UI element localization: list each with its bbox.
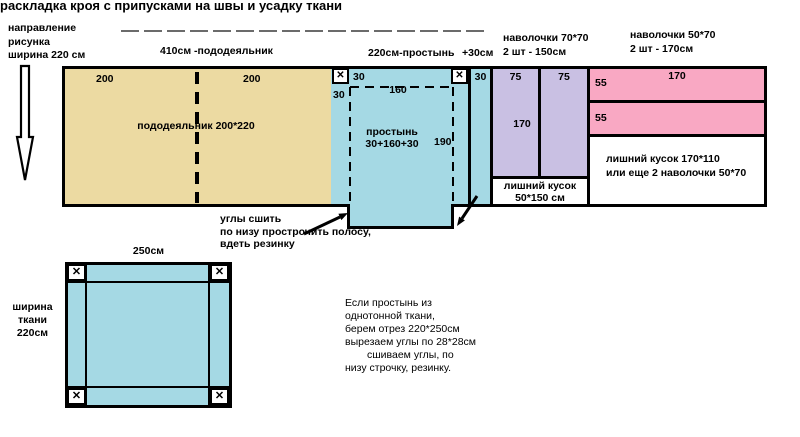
cut-mark-icon: ✕ bbox=[215, 391, 224, 402]
tab-note-line3: вдеть резинку bbox=[220, 238, 371, 251]
page-title: раскладка кроя с припусками на швы и уса… bbox=[0, 0, 342, 12]
instructions-line6: низу строчку, резинку. bbox=[345, 362, 476, 375]
sheet-name: простынь bbox=[342, 126, 442, 138]
pillow50-width: 170 bbox=[590, 70, 764, 82]
sheet-seam-top-value: 30 bbox=[353, 71, 365, 83]
direction-note: направление рисунка ширина 220 см bbox=[8, 22, 85, 63]
leftover50-line1: лишний кусок 170*110 bbox=[606, 153, 746, 167]
cut-mark-icon: ✕ bbox=[336, 71, 344, 81]
sheet-corner-cut-topright: ✕ bbox=[451, 68, 468, 84]
sheet-inner-width: 160 bbox=[378, 84, 418, 96]
pillows70-section-label: наволочки 70*70 2 шт - 150см bbox=[503, 31, 589, 59]
tab-note-line1: углы сшить bbox=[220, 213, 371, 226]
cut-mark-icon: ✕ bbox=[72, 267, 81, 278]
square-inner-line-top bbox=[67, 281, 230, 283]
duvet-section-label: 410см -пододеяльник bbox=[160, 45, 273, 57]
square-corner-cut-bottomleft: ✕ bbox=[67, 388, 86, 405]
duvet-width-right: 200 bbox=[243, 73, 261, 85]
fabric-direction-arrow bbox=[17, 66, 33, 180]
square-corner-cut-topleft: ✕ bbox=[67, 264, 86, 281]
leftover50-line2: или еще 2 наволочки 50*70 bbox=[606, 167, 746, 181]
pillow70-col2-width: 75 bbox=[541, 71, 587, 83]
square-corner-cut-topright: ✕ bbox=[210, 264, 229, 281]
pillows50-label-line2: 2 шт - 170см bbox=[630, 42, 716, 56]
instructions-line4: вырезаем углы по 28*28см bbox=[345, 336, 476, 349]
cut-mark-icon: ✕ bbox=[455, 71, 463, 81]
extra-section-label: +30см bbox=[462, 47, 493, 59]
instructions-line5: сшиваем углы, по bbox=[367, 349, 476, 362]
sheet-section-label: 220см-простынь bbox=[368, 47, 454, 59]
leftover70-line1: лишний кусок bbox=[493, 181, 587, 193]
leftover70-label: лишний кусок 50*150 см bbox=[493, 181, 587, 204]
cut-mark-icon: ✕ bbox=[72, 391, 81, 402]
duvet-label: пододеяльник 200*220 bbox=[116, 120, 276, 132]
sheet-label: простынь 30+160+30 bbox=[342, 126, 442, 150]
tab-note: углы сшить по низу прострочить полосу, в… bbox=[220, 213, 371, 251]
direction-note-line: ширина 220 см bbox=[8, 49, 85, 63]
duvet-width-left: 200 bbox=[96, 73, 114, 85]
instructions-line2: однотонной ткани, bbox=[345, 310, 476, 323]
square-top-dimension: 250см bbox=[65, 245, 232, 257]
fabric-width-line3: 220см bbox=[5, 327, 60, 340]
pillows70-label-line2: 2 шт - 150см bbox=[503, 45, 589, 59]
pillow50-bar2-height: 55 bbox=[595, 112, 607, 124]
strip-arrow-head bbox=[457, 217, 465, 226]
fabric-width-line1: ширина bbox=[5, 301, 60, 314]
tab-note-line2: по низу прострочить полосу, bbox=[220, 226, 371, 239]
square-corner-cut-bottomright: ✕ bbox=[210, 388, 229, 405]
instructions-line1: Если простынь из bbox=[345, 297, 476, 310]
cut-mark-icon: ✕ bbox=[215, 267, 224, 278]
sheet-seam-side-value: 30 bbox=[333, 89, 345, 101]
direction-note-line: рисунка bbox=[8, 36, 85, 50]
extra-strip-value: 30 bbox=[471, 71, 490, 83]
instructions-paragraph: Если простынь из однотонной ткани, берем… bbox=[345, 297, 476, 375]
instructions-line3: берем отрез 220*250см bbox=[345, 323, 476, 336]
pillows70-label-line1: наволочки 70*70 bbox=[503, 31, 589, 45]
pillows50-label-line1: наволочки 50*70 bbox=[630, 28, 716, 42]
fabric-width-label: ширина ткани 220см bbox=[5, 301, 60, 340]
leftover70-line2: 50*150 см bbox=[493, 193, 587, 205]
cutting-layout-diagram: раскладка кроя с припусками на швы и уса… bbox=[0, 0, 800, 437]
square-inner-line-bottom bbox=[67, 386, 230, 388]
leftover50-label: лишний кусок 170*110 или еще 2 наволочки… bbox=[606, 153, 746, 180]
square-inner-line-left bbox=[85, 264, 87, 406]
direction-note-line: направление bbox=[8, 22, 85, 36]
sheet-corner-cut-topleft: ✕ bbox=[332, 68, 349, 84]
fabric-width-line2: ткани bbox=[5, 314, 60, 327]
pillow70-col1-width: 75 bbox=[493, 71, 538, 83]
square-inner-line-right bbox=[208, 264, 210, 406]
pillow70-height: 170 bbox=[500, 118, 544, 130]
pillows50-section-label: наволочки 50*70 2 шт - 170см bbox=[630, 28, 716, 56]
sheet-formula: 30+160+30 bbox=[342, 138, 442, 150]
pillow50-bar1-height: 55 bbox=[595, 77, 607, 89]
